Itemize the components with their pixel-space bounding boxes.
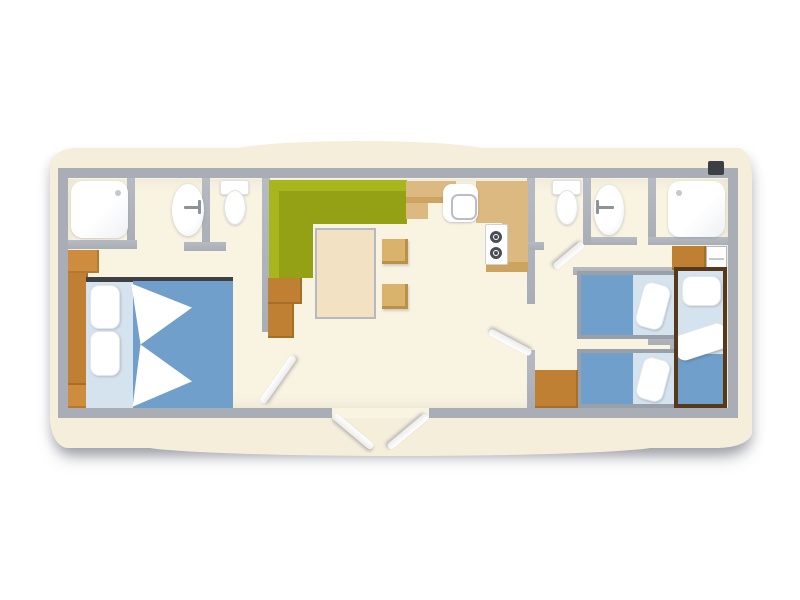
corner-sofa-seat-side bbox=[279, 191, 313, 278]
living-cabinet-lower bbox=[268, 304, 294, 338]
wall-living-right-bottom bbox=[527, 350, 535, 408]
wall-shower-right bbox=[648, 178, 656, 245]
burner-icon bbox=[490, 247, 502, 259]
entry-opening bbox=[332, 408, 429, 418]
shower-right bbox=[668, 181, 725, 237]
wall-below-sink-right bbox=[591, 237, 637, 245]
vent-block bbox=[708, 161, 724, 175]
wall-shower-left bbox=[127, 178, 135, 241]
hob bbox=[485, 224, 508, 265]
toilet-left-bowl bbox=[224, 190, 246, 225]
floor-plan-stage bbox=[0, 0, 800, 600]
pillow bbox=[634, 280, 673, 332]
pillow bbox=[90, 285, 120, 329]
toilet-right-bowl bbox=[556, 190, 578, 225]
kitchen-sink-basin bbox=[451, 194, 477, 220]
blanket-folds bbox=[126, 281, 192, 408]
stool bbox=[382, 284, 408, 309]
burner-icon bbox=[490, 231, 502, 243]
single-bed-top bbox=[577, 271, 678, 339]
wardrobe-top-cabinet bbox=[68, 250, 99, 273]
kitchen-sink bbox=[443, 184, 478, 222]
stool bbox=[382, 239, 408, 264]
single-bed-vertical bbox=[674, 267, 727, 408]
wall-below-shower-right bbox=[648, 237, 728, 245]
pillow bbox=[90, 331, 120, 376]
shower-drain-icon bbox=[676, 190, 682, 196]
corridor-cabinet bbox=[535, 370, 578, 408]
shower-left bbox=[71, 181, 128, 238]
single-bed-blanket bbox=[678, 354, 723, 404]
faucet-right-handle-icon bbox=[596, 200, 599, 214]
pillow bbox=[682, 276, 721, 306]
faucet-left-handle-icon bbox=[198, 200, 201, 214]
wall-below-sink-left bbox=[184, 242, 226, 251]
single-bed-bottom bbox=[577, 349, 678, 408]
coffee-table bbox=[315, 228, 376, 319]
kitchen-corner-worktop bbox=[476, 181, 528, 223]
wall-stub-right-bath bbox=[527, 242, 544, 250]
single-bed-blanket bbox=[581, 275, 633, 335]
single-bed-blanket bbox=[581, 353, 633, 404]
pillow bbox=[634, 355, 672, 404]
double-bed bbox=[86, 277, 233, 408]
wall-wc-sink-right bbox=[583, 178, 591, 245]
living-cabinet-upper bbox=[268, 278, 302, 304]
kitchen-cabinet-small bbox=[406, 203, 428, 219]
wall-living-right-top bbox=[527, 178, 535, 304]
wall-below-shower-left bbox=[68, 240, 137, 249]
shower-drain-icon bbox=[115, 190, 121, 196]
wardrobe bbox=[68, 273, 88, 385]
faucet-right-icon bbox=[598, 206, 614, 209]
